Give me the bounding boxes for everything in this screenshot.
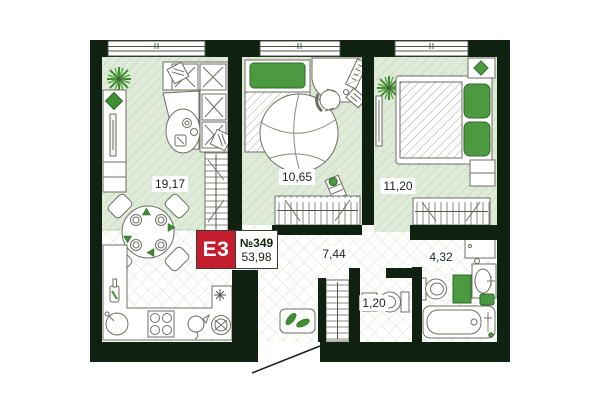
unit-number: №349	[240, 236, 273, 250]
floor-plan: 19,17 10,65 11,20 7,44 4,32 1,20 E3 №349…	[0, 0, 600, 400]
kitchen-sink	[105, 312, 128, 335]
room-label-bedroom-large: 11,20	[380, 178, 415, 194]
laundry-basket	[480, 294, 494, 305]
room-label-bathroom: 4,32	[426, 249, 455, 265]
wall-bedroom-large-bottom	[410, 225, 497, 240]
stove	[148, 311, 174, 337]
windows	[108, 41, 468, 56]
room-label-living: 19,17	[152, 176, 188, 192]
unit-info: №349 53,98	[235, 231, 277, 268]
window	[108, 41, 205, 56]
entrance-door-swing	[252, 346, 320, 373]
total-area: 53,98	[241, 250, 271, 264]
wall-right	[497, 40, 510, 362]
coffee-table	[166, 109, 200, 153]
wardrobe	[275, 196, 360, 225]
room-label-wc: 1,20	[359, 295, 388, 311]
pot-icon	[212, 316, 231, 335]
bathtub	[423, 306, 495, 338]
double-bed	[396, 76, 492, 164]
wall-kitchen-entry	[232, 270, 258, 342]
toilet	[419, 278, 447, 300]
washing-machine	[453, 275, 471, 303]
mouse-icon	[344, 90, 349, 95]
window	[395, 41, 468, 56]
hall-wardrobe	[326, 280, 349, 341]
nightstand	[468, 58, 495, 78]
wall-sink	[472, 259, 496, 299]
bench	[470, 160, 495, 186]
unit-badge: E3 №349 53,98	[196, 230, 278, 269]
wall-bathroom-left	[412, 267, 422, 342]
room-label-hallway: 7,44	[319, 246, 348, 262]
wall-left	[90, 40, 102, 362]
shoe-mat	[280, 309, 315, 333]
room-label-bedroom-small: 10,65	[279, 169, 315, 185]
layout-code-badge: E3	[197, 231, 235, 268]
floor-plan-drawing	[0, 0, 600, 400]
wardrobe	[413, 198, 490, 225]
wall-bedrooms	[362, 57, 374, 225]
window	[260, 41, 340, 56]
wall-bedroom-small-bottom	[272, 225, 362, 235]
wall-wc-top	[386, 268, 412, 278]
layout-code: E3	[203, 238, 230, 262]
plant-icon	[107, 67, 131, 91]
mirror	[376, 96, 382, 146]
wall-bottom-right	[320, 342, 510, 362]
wall-closet-left	[318, 278, 326, 342]
wardrobe	[205, 152, 228, 238]
wall-bottom-left	[90, 342, 258, 362]
wall-living-bedroom	[228, 57, 242, 232]
media-cabinet	[103, 162, 126, 192]
